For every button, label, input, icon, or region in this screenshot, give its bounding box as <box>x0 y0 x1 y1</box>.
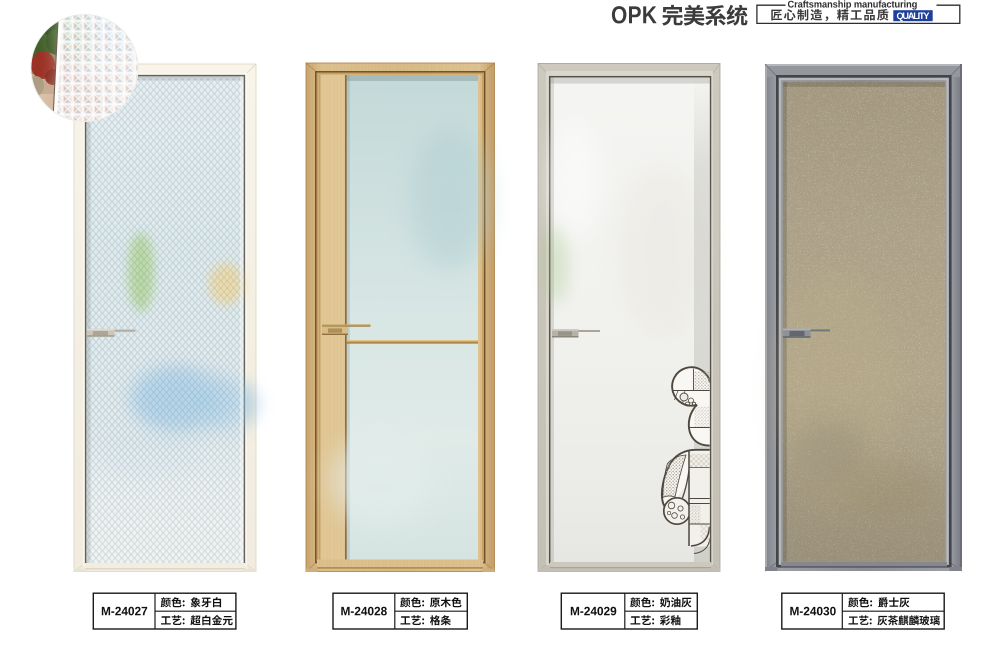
svg-text:QUALITY: QUALITY <box>897 11 930 21</box>
